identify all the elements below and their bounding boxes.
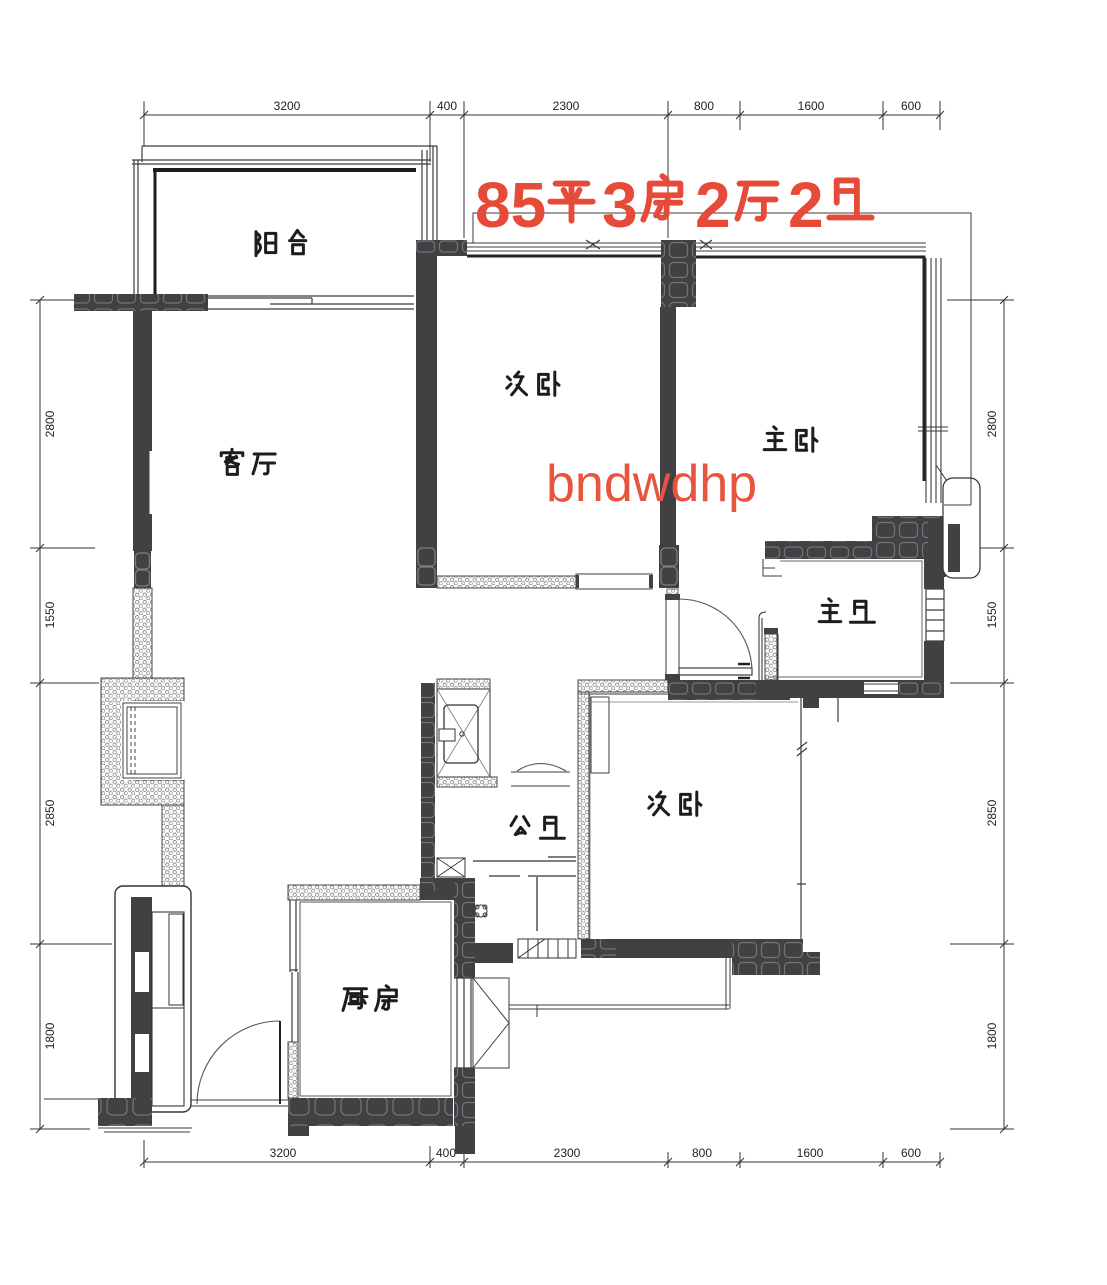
svg-text:400: 400 [436,1146,456,1160]
svg-text:2800: 2800 [985,410,999,437]
svg-text:bndwdhp: bndwdhp [546,455,757,513]
svg-text:3200: 3200 [270,1146,297,1160]
svg-text:2: 2 [695,169,731,241]
svg-text:800: 800 [692,1146,712,1160]
svg-text:1550: 1550 [43,601,57,628]
svg-text:2850: 2850 [43,799,57,826]
svg-text:1600: 1600 [797,1146,824,1160]
svg-text:600: 600 [901,99,921,113]
svg-text:1800: 1800 [985,1022,999,1049]
svg-text:1550: 1550 [985,601,999,628]
svg-text:2300: 2300 [553,99,580,113]
svg-text:2300: 2300 [554,1146,581,1160]
svg-text:1600: 1600 [798,99,825,113]
svg-text:1800: 1800 [43,1022,57,1049]
svg-text:3200: 3200 [274,99,301,113]
svg-text:600: 600 [901,1146,921,1160]
svg-text:800: 800 [694,99,714,113]
svg-text:2850: 2850 [985,799,999,826]
svg-text:2: 2 [788,169,824,241]
svg-text:3: 3 [602,169,638,241]
svg-text:400: 400 [437,99,457,113]
svg-text:85: 85 [475,169,546,241]
svg-text:2800: 2800 [43,410,57,437]
